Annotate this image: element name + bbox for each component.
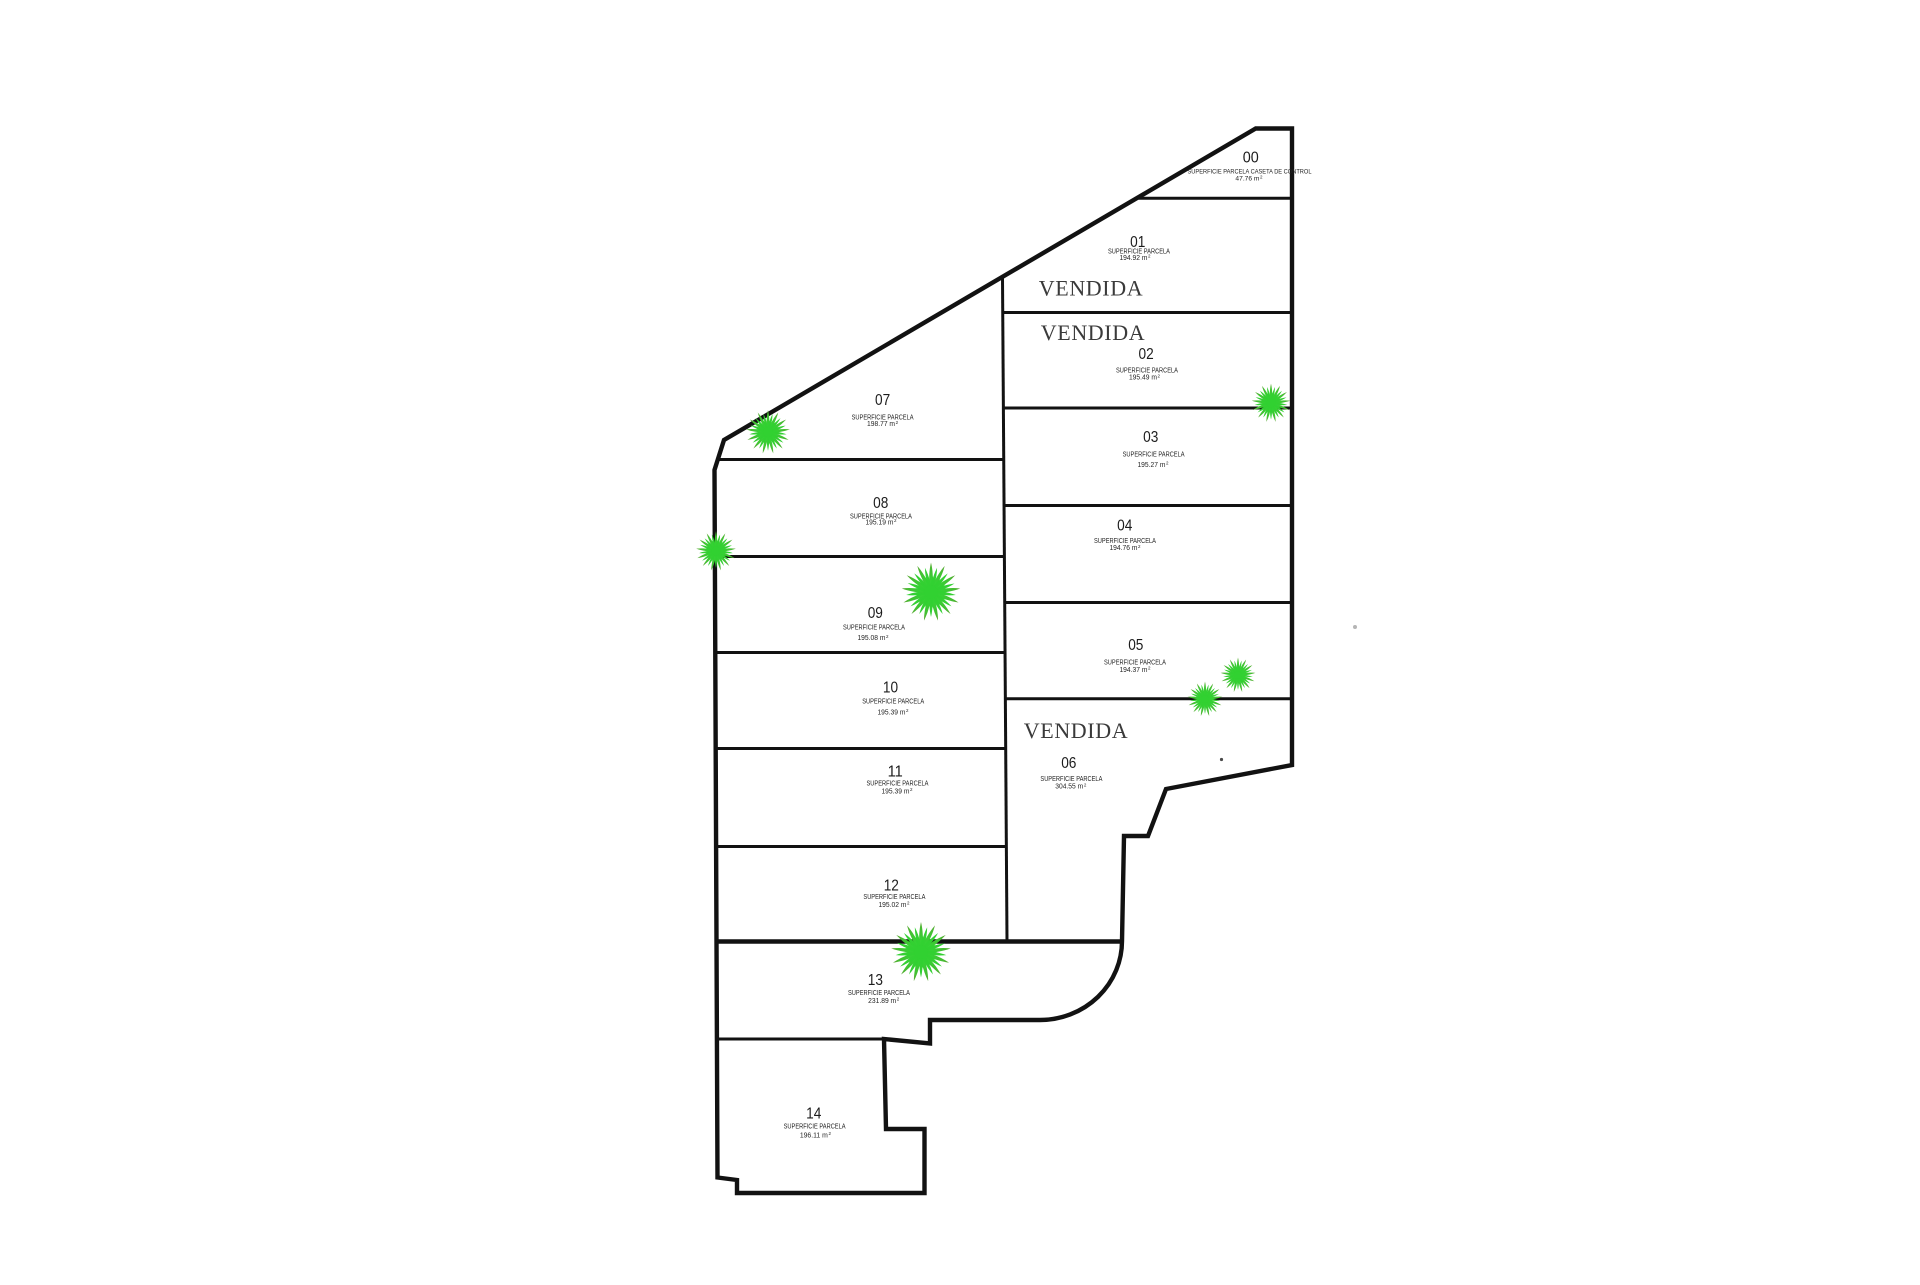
svg-text:14: 14 [806,1106,821,1123]
svg-text:00: 00 [1243,149,1259,166]
svg-text:195.27 m2: 195.27 m2 [1137,461,1169,469]
svg-text:06: 06 [1061,755,1076,772]
svg-text:195.39 m2: 195.39 m2 [881,787,913,795]
svg-text:194.37 m2: 194.37 m2 [1119,666,1151,674]
svg-text:02: 02 [1139,346,1154,363]
svg-text:07: 07 [875,392,890,409]
svg-text:08: 08 [873,495,888,512]
svg-text:SUPERFICIE PARCELA CASETA DE C: SUPERFICIE PARCELA CASETA DE CONTROL [1188,169,1312,176]
svg-text:195.39 m2: 195.39 m2 [877,708,909,716]
svg-text:304.55 m2: 304.55 m2 [1055,782,1087,790]
svg-text:VENDIDA: VENDIDA [1041,320,1145,345]
svg-text:195.49 m2: 195.49 m2 [1129,373,1161,381]
svg-text:231.89 m2: 231.89 m2 [868,997,900,1005]
svg-text:196.11 m2: 196.11 m2 [800,1131,832,1139]
svg-text:SUPERFICIE PARCELA: SUPERFICIE PARCELA [863,894,925,901]
svg-text:11: 11 [888,764,903,781]
svg-text:09: 09 [868,605,883,622]
svg-text:13: 13 [868,972,883,989]
svg-text:198.77 m2: 198.77 m2 [867,420,899,428]
svg-text:195.08 m2: 195.08 m2 [857,634,889,642]
svg-text:SUPERFICIE PARCELA: SUPERFICIE PARCELA [848,990,910,997]
svg-text:VENDIDA: VENDIDA [1024,718,1128,743]
svg-text:47.76 m2: 47.76 m2 [1235,174,1263,182]
svg-text:194.76 m2: 194.76 m2 [1109,544,1141,552]
svg-text:VENDIDA: VENDIDA [1039,276,1143,301]
svg-text:SUPERFICIE PARCELA: SUPERFICIE PARCELA [1094,538,1156,545]
svg-text:10: 10 [883,680,898,697]
svg-text:SUPERFICIE PARCELA: SUPERFICIE PARCELA [862,698,924,705]
svg-text:04: 04 [1117,517,1132,534]
svg-text:SUPERFICIE PARCELA: SUPERFICIE PARCELA [843,625,905,632]
svg-text:SUPERFICIE PARCELA: SUPERFICIE PARCELA [1123,452,1185,459]
svg-text:SUPERFICIE PARCELA: SUPERFICIE PARCELA [867,781,929,788]
svg-text:12: 12 [884,877,899,894]
svg-text:SUPERFICIE PARCELA: SUPERFICIE PARCELA [1040,776,1102,783]
svg-text:195.02 m2: 195.02 m2 [878,901,910,909]
svg-text:SUPERFICIE PARCELA: SUPERFICIE PARCELA [784,1124,846,1131]
svg-text:SUPERFICIE PARCELA: SUPERFICIE PARCELA [1116,367,1178,374]
svg-text:194.92 m2: 194.92 m2 [1119,254,1151,262]
svg-text:SUPERFICIE PARCELA: SUPERFICIE PARCELA [1104,660,1166,667]
svg-text:03: 03 [1143,429,1158,446]
svg-text:05: 05 [1128,637,1143,654]
svg-text:195.19 m2: 195.19 m2 [865,518,897,526]
